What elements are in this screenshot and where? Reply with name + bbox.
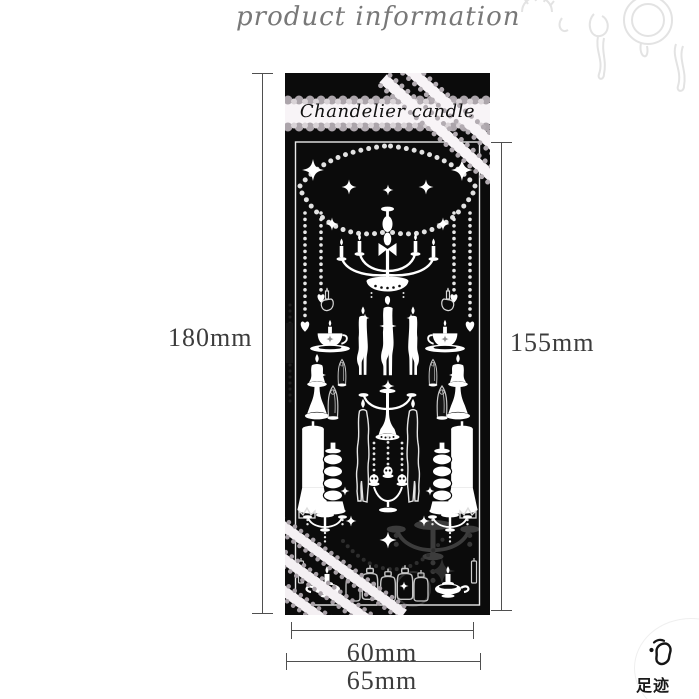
badge-label: 足迹 [636, 672, 698, 696]
dimension-label-inner-width: 60mm [332, 638, 432, 668]
product-information-page: product information [0, 0, 699, 699]
footprints-badge[interactable]: 足迹 [634, 630, 699, 698]
dimension-label-outer-width: 65mm [332, 666, 432, 696]
sticker-sheet [285, 73, 490, 615]
melting-candle-icons [357, 296, 419, 375]
chandelier-icon [337, 207, 439, 304]
decorative-doodles-icon [498, 0, 699, 100]
dimension-label-inner-height: 155mm [510, 328, 594, 358]
dimension-label-outer-height: 180mm [168, 323, 246, 353]
page-title: product information [236, 2, 516, 32]
footprint-icon [646, 638, 678, 670]
diagonal-lace-ribbon [378, 73, 490, 201]
product-label: Chandelier candle [285, 101, 490, 122]
skull-candelabra-icon [369, 437, 408, 512]
